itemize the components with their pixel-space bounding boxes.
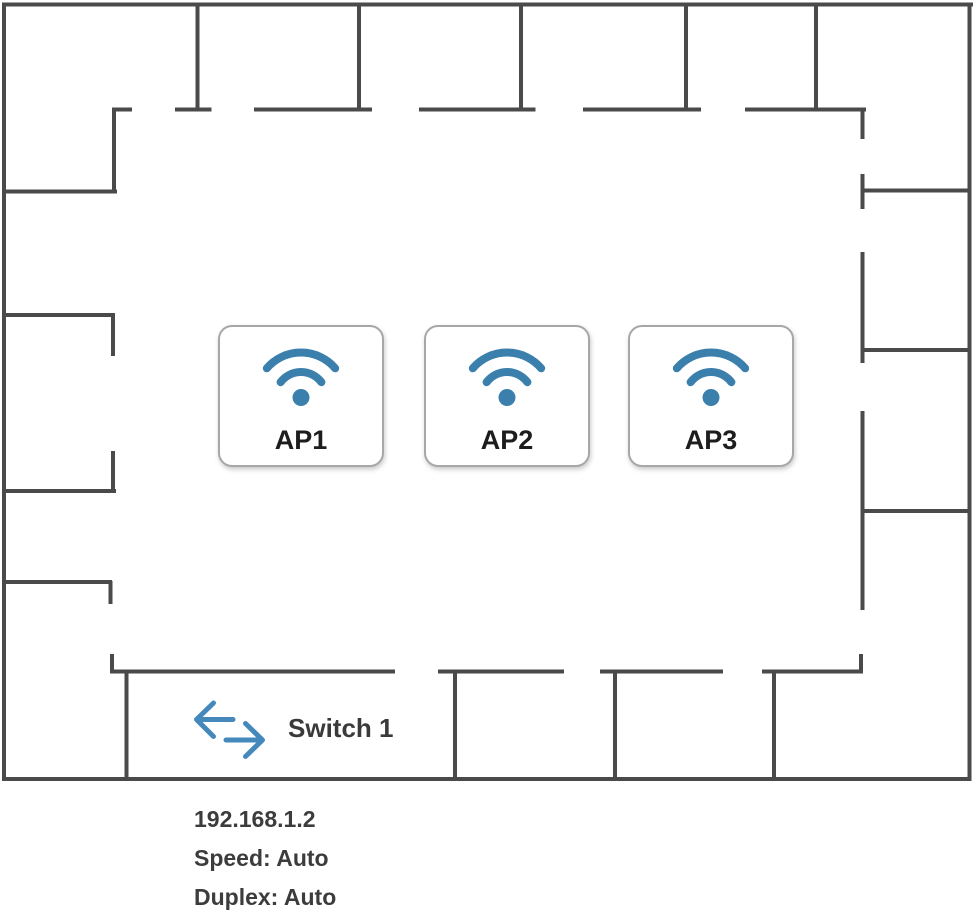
svg-text:AP1: AP1: [275, 425, 328, 455]
svg-text:AP2: AP2: [481, 425, 534, 455]
svg-text:Duplex: Auto: Duplex: Auto: [194, 884, 336, 910]
svg-text:Switch 1: Switch 1: [288, 713, 393, 743]
svg-text:AP3: AP3: [685, 425, 738, 455]
svg-text:192.168.1.2: 192.168.1.2: [194, 806, 316, 832]
svg-text:Speed: Auto: Speed: Auto: [194, 845, 329, 871]
